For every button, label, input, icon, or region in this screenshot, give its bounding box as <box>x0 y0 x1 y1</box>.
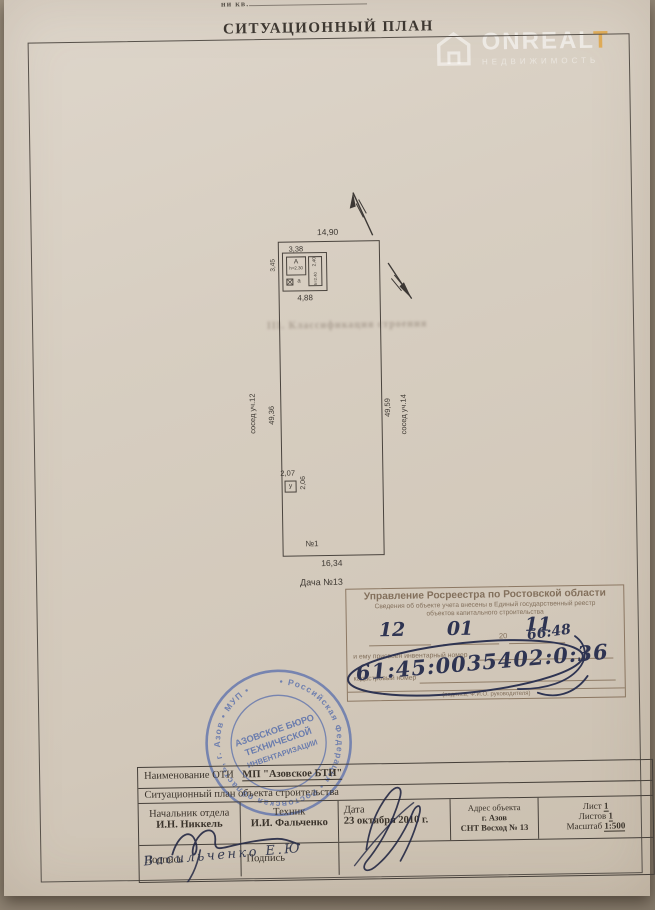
sheet-label: Лист <box>583 801 602 811</box>
shed-dim-top: 2,07 <box>280 469 295 478</box>
scanned-document-photo: ни кв. СИТУАЦИОННЫЙ ПЛАН ONREALT НЕДВИЖИ… <box>0 0 655 910</box>
building-dim-left: 3,45 <box>269 253 276 277</box>
scale-label: Масштаб <box>566 821 602 832</box>
page-title: СИТУАЦИОННЫЙ ПЛАН <box>218 18 438 38</box>
north-arrow-marks <box>330 178 432 310</box>
scale-row: Масштаб 1:500 <box>539 820 653 832</box>
shed-outline: у <box>285 480 297 492</box>
building-dim-bottom: 4,88 <box>283 293 328 303</box>
sheets-label: Листов <box>579 811 607 821</box>
neighbor-right-label: сосед уч.14 <box>399 386 409 442</box>
shed-dim-side: 2,06 <box>300 468 307 498</box>
scale-value: 1:500 <box>604 820 625 831</box>
building-annex-label: а <box>297 278 300 284</box>
previous-page-cutoff-text: ни кв. <box>221 0 249 9</box>
building-crossed-box <box>286 279 293 286</box>
building-annex-height: h=2.40 <box>313 267 318 291</box>
pen-circle-mark <box>337 623 655 720</box>
neighbor-left-label: сосед уч.12 <box>248 386 258 442</box>
plot-caption: Дача №13 <box>300 577 343 588</box>
plot-dim-bottom: 16,34 <box>302 557 362 568</box>
document-content: ни кв. СИТУАЦИОННЫЙ ПЛАН ONREALT НЕДВИЖИ… <box>0 0 655 901</box>
building-dim-top: 3,38 <box>282 244 310 253</box>
building-main-height: h=2.30 <box>287 266 305 271</box>
paper-sheet: ни кв. СИТУАЦИОННЫЙ ПЛАН ONREALT НЕДВИЖИ… <box>4 0 650 896</box>
shed-label: у <box>286 481 296 490</box>
building-main-part: А h=2.30 <box>286 256 306 275</box>
plot-dim-left: 49,36 <box>267 395 277 435</box>
plot-number: №1 <box>305 539 318 548</box>
plot-dim-right: 49,59 <box>383 387 393 427</box>
cutoff-underline <box>249 3 367 6</box>
cross-mark-icon <box>287 280 292 285</box>
sheet-cell: Лист 1 Листов 1 Масштаб 1:500 <box>539 796 654 839</box>
